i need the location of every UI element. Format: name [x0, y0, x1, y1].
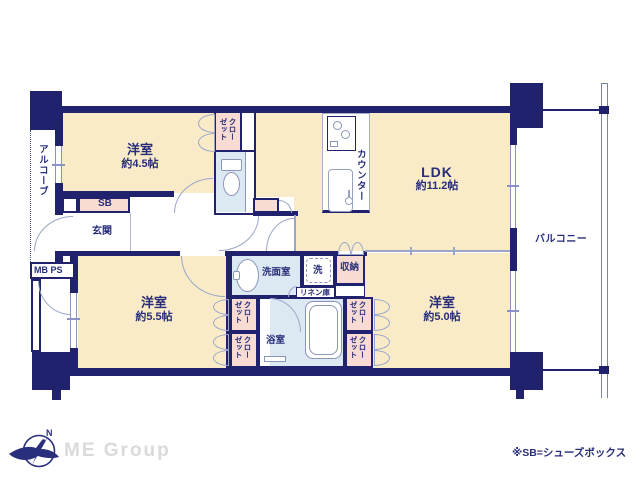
wall-top	[62, 106, 518, 113]
balcony-bottom-line	[543, 369, 603, 371]
toilet-bowl	[223, 172, 240, 196]
floor-plan: 洋室 約4.5帖 LDK 約11.2帖 洋室 約5.5帖 洋室 約5.0帖 アル…	[0, 0, 640, 480]
room-55-size: 約5.5帖	[114, 311, 194, 324]
wall-bottom	[70, 368, 510, 376]
pillar-bottom-left-stub	[52, 390, 61, 400]
washroom-sink-tab	[233, 271, 240, 280]
storage-label: 収納	[340, 263, 359, 274]
entrance-step-line	[130, 213, 131, 251]
bath-counter	[264, 356, 286, 362]
closet45-label: クローゼット	[219, 118, 237, 147]
closet50-upper-label: クローゼット	[349, 301, 367, 330]
wall-hall-bottom-left	[62, 251, 180, 256]
window-tick	[507, 310, 519, 312]
mbps-door-arc	[38, 281, 71, 315]
balcony-label: バルコニー	[535, 234, 587, 246]
bathroom-label: 浴室	[266, 336, 285, 347]
room-50-label: 洋室 約5.0帖	[402, 296, 482, 324]
pillar-bottom-right-stub	[516, 390, 524, 399]
room-55-label: 洋室 約5.5帖	[114, 296, 194, 324]
wall-right-pier	[510, 228, 517, 271]
ldk-label: LDK 約11.2帖	[397, 164, 477, 193]
wall-room55-left-bottom	[70, 348, 78, 368]
closet55-upper-label: クローゼット	[234, 301, 252, 330]
storage-under-box	[335, 285, 365, 297]
washroom-label: 洗面室	[262, 268, 291, 279]
partition-tick	[453, 247, 455, 255]
entrance-side-box	[62, 197, 78, 213]
stove-burner-1	[333, 121, 342, 130]
room-55-name: 洋室	[114, 296, 194, 311]
bathtub-inner	[309, 305, 338, 355]
pillar-top-right	[510, 83, 543, 128]
window-tick	[67, 318, 80, 320]
room-45-size: 約4.5帖	[100, 158, 180, 171]
balcony-top-block	[599, 106, 609, 114]
partition-tick	[410, 247, 412, 255]
ldk-partition	[365, 250, 510, 252]
entrance-door-arc	[34, 216, 73, 251]
kitchen-faucet-stem	[348, 190, 350, 198]
compass-north-label: N	[46, 428, 53, 438]
balcony-top-line	[543, 109, 603, 111]
balcony-railing	[601, 83, 608, 398]
ldk-name: LDK	[397, 164, 477, 180]
mb-ps-label: MB PS	[34, 265, 63, 275]
room-45-name: 洋室	[100, 143, 180, 158]
counter-label: カウンター	[354, 149, 365, 207]
room-50-name: 洋室	[402, 296, 482, 311]
window-room50-right	[510, 271, 516, 352]
alcove-label: アルコーブ	[36, 144, 47, 202]
laundry-label: 洗	[313, 266, 323, 277]
window-tick	[52, 164, 65, 166]
window-ldk-right	[510, 145, 516, 228]
brand-text: ME Group	[64, 440, 171, 462]
room-50-size: 約5.0帖	[402, 311, 482, 324]
sb-note: ※SB=シューズボックス	[512, 447, 626, 459]
stove-grill	[330, 141, 338, 147]
closet55-lower-label: クローゼット	[234, 336, 252, 365]
compass-bird-logo	[6, 424, 68, 474]
alcove-boundary	[30, 130, 31, 262]
toilet-tank	[221, 159, 242, 171]
shoe-box-label: SB	[98, 198, 112, 210]
window-tick	[507, 185, 519, 187]
pillar-bottom-right	[510, 352, 543, 390]
wall-left-upper	[55, 113, 63, 146]
entrance-label: 玄関	[92, 226, 112, 238]
linen-label: リネン庫	[300, 289, 330, 298]
wall-right-upper-stub	[510, 128, 517, 145]
balcony-bottom-block	[599, 366, 609, 374]
ldk-size: 約11.2帖	[397, 180, 477, 193]
hall-side-cabinet	[253, 198, 279, 213]
stove-burner-2	[341, 130, 350, 139]
kitchen-faucet	[345, 197, 353, 205]
pillar-bottom-left	[32, 352, 70, 390]
room-45-label: 洋室 約4.5帖	[100, 143, 180, 171]
closet50-lower-label: クローゼット	[349, 336, 367, 365]
ldk-door-line	[294, 215, 296, 251]
window-room55-left	[70, 293, 77, 348]
